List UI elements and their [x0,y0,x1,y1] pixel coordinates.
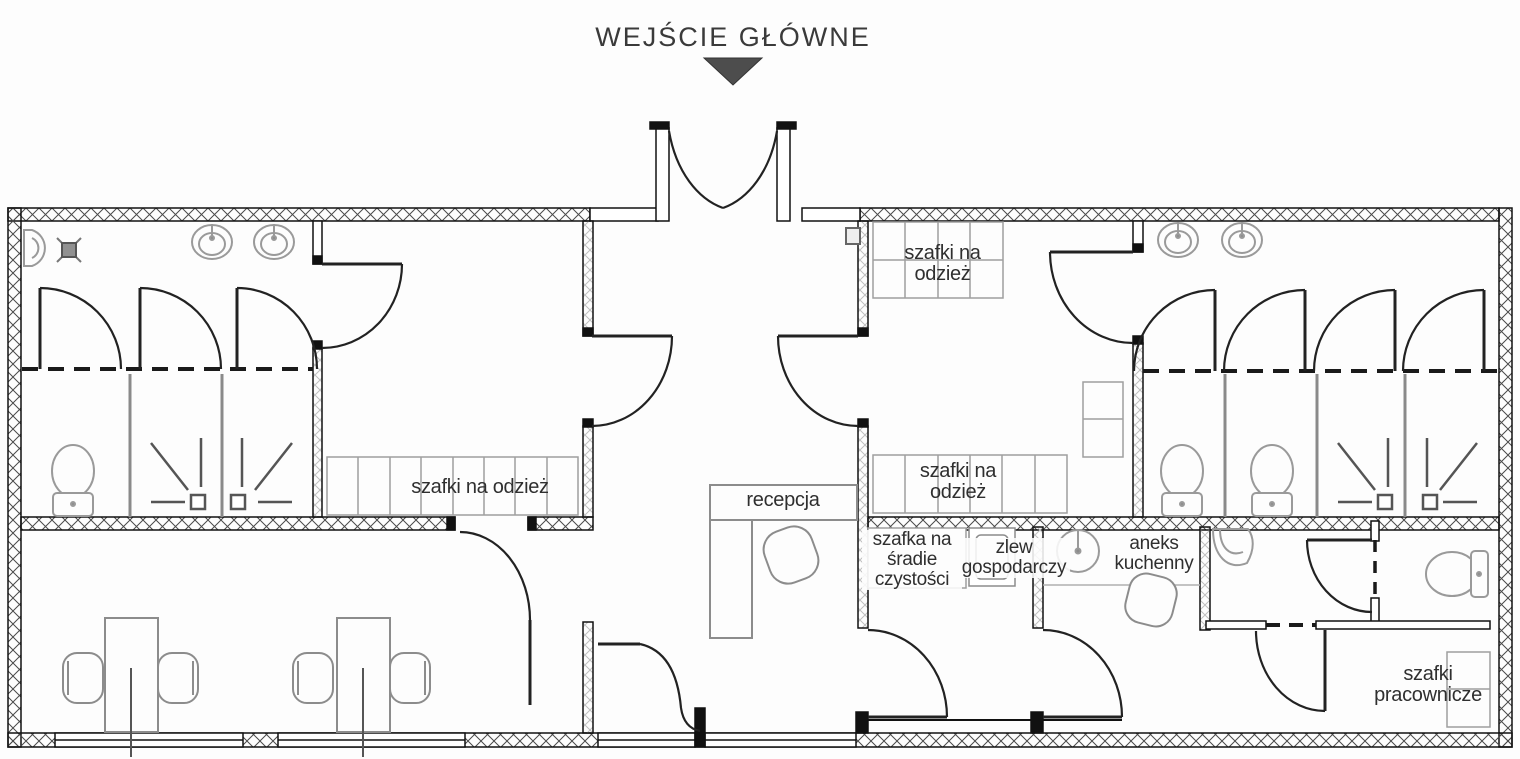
room-label-utility-sink: zlew gospodarczy [958,538,1070,578]
floor-plan-drawing [0,0,1520,759]
toilet-icon [1161,445,1203,516]
shower-icon [231,438,292,509]
room-label-cleaning-cabinet: szafka na śradie czystości [862,530,962,590]
entrance-arrow-icon [704,58,762,85]
room-label-staff-lockers: szafki pracownicze [1368,664,1488,706]
shower-icon [151,438,205,509]
toilet-icon [1426,551,1488,597]
room-label-reception: recepcja [733,490,833,511]
service-box [846,228,860,244]
office-chair-icon [158,653,198,703]
toilet-icon [1251,445,1293,516]
sink-icon [1158,222,1198,257]
floor-plan: WEJŚCIE GŁÓWNE szafki na odzież szafki n… [0,0,1520,759]
chair-icon [1122,570,1181,630]
entrance-door-arc [723,131,777,208]
sink-icon [192,224,232,259]
cabinet [1083,382,1123,457]
chair-icon [758,521,823,589]
windows [55,733,856,747]
page-title: WEJŚCIE GŁÓWNE [560,22,906,52]
sink-icon [254,224,294,259]
fixtures [24,222,1488,597]
room-label-kitchenette: aneks kuchenny [1104,534,1204,574]
entrance-door-arc [669,131,723,208]
office-chair-icon [293,653,333,703]
urinal-icon [24,230,45,266]
shower-icon [1338,438,1392,509]
room-label-left-lockers: szafki na odzież [370,477,590,498]
sink-icon [1222,222,1262,257]
exterior-walls [8,122,1512,747]
floor-drain-icon [57,238,81,262]
room-label-right-lockers-bottom: szafki na odzież [908,461,1008,503]
shower-icon [1423,438,1477,509]
room-label-right-lockers-top: szafki na odzież [895,243,990,285]
corner-sink-icon [1213,529,1253,565]
office-chair-icon [63,653,103,703]
toilet-icon [52,445,94,516]
office-chair-icon [390,653,430,703]
